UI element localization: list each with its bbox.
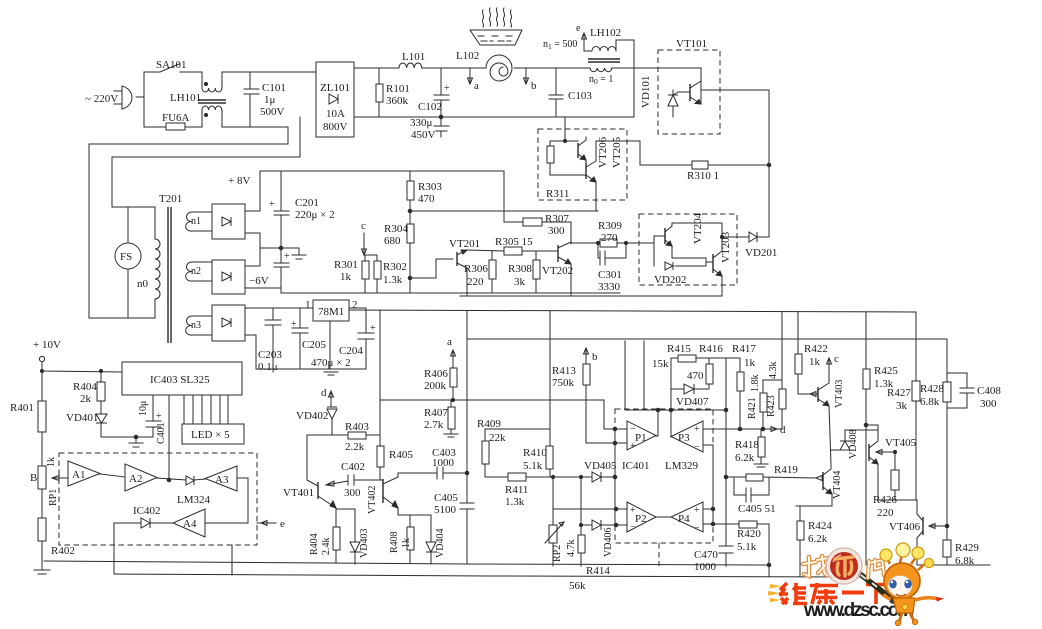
svg-text:d: d	[780, 424, 786, 436]
svg-text:VT406: VT406	[889, 521, 921, 533]
svg-text:R406: R406	[424, 368, 448, 380]
svg-text:VD403: VD403	[359, 529, 370, 558]
svg-text:SA101: SA101	[156, 59, 187, 71]
svg-text:n0: n0	[137, 278, 149, 290]
svg-text:4.7k: 4.7k	[566, 540, 577, 558]
svg-text:VD404: VD404	[435, 529, 446, 558]
svg-text:1k: 1k	[401, 538, 412, 548]
svg-text:220: 220	[467, 276, 484, 288]
svg-text:6.2k: 6.2k	[735, 452, 755, 464]
svg-text:R429: R429	[955, 542, 979, 554]
svg-text:a: a	[474, 80, 479, 92]
svg-text:6.8k: 6.8k	[920, 396, 940, 408]
svg-text:470μ × 2: 470μ × 2	[311, 357, 351, 369]
svg-text:R306: R306	[464, 263, 488, 275]
svg-text:C201: C201	[295, 197, 319, 209]
svg-text:LM324: LM324	[177, 494, 211, 506]
svg-text:VD405: VD405	[584, 460, 617, 472]
svg-text:1μ: 1μ	[264, 94, 276, 106]
svg-text:ZL101: ZL101	[320, 82, 350, 94]
svg-text:R423: R423	[766, 395, 777, 417]
svg-text:+: +	[291, 319, 297, 330]
svg-text:VD402: VD402	[296, 410, 328, 422]
svg-text:10μ: 10μ	[138, 401, 149, 416]
svg-text:P1: P1	[635, 432, 647, 444]
svg-text:~ 220V: ~ 220V	[85, 93, 118, 105]
svg-text:300: 300	[344, 487, 361, 499]
svg-text:C470: C470	[694, 549, 718, 561]
svg-text:C205: C205	[302, 339, 326, 351]
svg-text:R415: R415	[667, 343, 691, 355]
svg-text:R303: R303	[418, 181, 442, 193]
svg-text:R417: R417	[732, 343, 756, 355]
svg-text:VT204: VT204	[692, 212, 704, 244]
svg-text:+: +	[694, 505, 700, 516]
svg-text:LH102: LH102	[590, 27, 621, 39]
svg-text:R301: R301	[334, 259, 358, 271]
svg-text:R411: R411	[505, 484, 528, 496]
svg-text:1: 1	[305, 299, 311, 311]
svg-text:LM329: LM329	[665, 460, 699, 472]
svg-text:VT202: VT202	[542, 265, 573, 277]
svg-text:R427: R427	[887, 387, 911, 399]
svg-text:5100: 5100	[434, 504, 457, 516]
svg-text:800V: 800V	[323, 121, 348, 133]
svg-text:0.1μ: 0.1μ	[258, 361, 278, 373]
svg-text:IC401: IC401	[622, 460, 650, 472]
svg-text:R421: R421	[747, 397, 758, 419]
svg-text:R304: R304	[384, 223, 408, 235]
svg-text:e: e	[576, 23, 581, 34]
svg-text:R409: R409	[477, 418, 501, 430]
svg-text:+: +	[370, 323, 376, 334]
svg-text:360k: 360k	[386, 95, 409, 107]
svg-text:R305 15: R305 15	[495, 236, 533, 248]
svg-text:300: 300	[980, 398, 997, 410]
svg-text:LH101: LH101	[170, 92, 201, 104]
svg-text:−6V: −6V	[249, 275, 269, 287]
svg-text:750k: 750k	[552, 377, 575, 389]
svg-text:VD407: VD407	[676, 396, 709, 408]
svg-text:78M1: 78M1	[318, 306, 344, 318]
svg-text:n0 = 1: n0 = 1	[589, 74, 613, 86]
svg-text:R416: R416	[699, 343, 723, 355]
svg-text:R424: R424	[808, 520, 832, 532]
svg-text:L102: L102	[456, 50, 479, 62]
svg-text:1k: 1k	[744, 357, 756, 369]
svg-text:L101: L101	[402, 51, 425, 63]
svg-text:C103: C103	[568, 90, 592, 102]
svg-text:220: 220	[877, 507, 894, 519]
svg-text:R405: R405	[389, 449, 413, 461]
svg-text:R309: R309	[598, 220, 622, 232]
svg-text:3330: 3330	[598, 281, 621, 293]
svg-text:VT205: VT205	[611, 136, 623, 168]
svg-text:VD202: VD202	[654, 274, 686, 286]
svg-text:C204: C204	[339, 345, 363, 357]
svg-text:b: b	[592, 351, 598, 363]
svg-text:5.1k: 5.1k	[523, 460, 543, 472]
svg-text:VT404: VT404	[832, 471, 843, 499]
svg-text:10A: 10A	[326, 108, 345, 120]
svg-text:VT403: VT403	[834, 380, 845, 408]
svg-text:A1: A1	[72, 469, 85, 481]
svg-text:R101: R101	[386, 83, 410, 95]
svg-text:R410: R410	[523, 447, 547, 459]
svg-text:C401: C401	[156, 422, 167, 444]
svg-text:d: d	[321, 387, 327, 399]
svg-text:+: +	[444, 83, 450, 94]
svg-text:330μ: 330μ	[410, 117, 433, 129]
svg-text:R419: R419	[774, 464, 798, 476]
svg-text:RP1: RP1	[48, 489, 59, 506]
svg-text:R425: R425	[874, 365, 898, 377]
svg-text:LED × 5: LED × 5	[191, 429, 230, 441]
svg-text:R414: R414	[586, 565, 610, 577]
svg-text:e: e	[280, 518, 285, 530]
svg-text:n2: n2	[191, 266, 201, 277]
svg-text:1000: 1000	[694, 561, 717, 573]
svg-text:300: 300	[548, 225, 565, 237]
svg-text:C408: C408	[977, 385, 1001, 397]
svg-text:c: c	[361, 220, 366, 232]
svg-text:−: −	[694, 523, 700, 534]
svg-text:1k: 1k	[809, 356, 821, 368]
svg-text:VD408: VD408	[848, 430, 859, 459]
svg-text:R413: R413	[552, 365, 576, 377]
svg-text:C101: C101	[262, 82, 286, 94]
svg-text:1k: 1k	[340, 271, 352, 283]
svg-text:A3: A3	[215, 474, 229, 486]
svg-text:4.3k: 4.3k	[768, 362, 779, 380]
svg-text:450V: 450V	[411, 129, 436, 141]
svg-text:VT402: VT402	[367, 486, 378, 514]
svg-text:n3: n3	[191, 320, 201, 331]
svg-text:R310 1: R310 1	[687, 170, 719, 182]
svg-text:IC402: IC402	[133, 505, 161, 517]
svg-text:2.2k: 2.2k	[345, 441, 365, 453]
svg-text:1.3k: 1.3k	[383, 274, 403, 286]
svg-text:+: +	[694, 424, 700, 435]
svg-text:R408: R408	[389, 531, 400, 553]
svg-text:VT201: VT201	[449, 238, 480, 250]
svg-text:VD401: VD401	[66, 412, 98, 424]
svg-text:R420: R420	[737, 528, 761, 540]
svg-text:R407: R407	[424, 407, 448, 419]
svg-text:56k: 56k	[569, 580, 586, 592]
svg-text:R311: R311	[546, 188, 569, 200]
svg-text:R307: R307	[545, 213, 569, 225]
svg-text:a: a	[447, 336, 452, 348]
svg-text:n1: n1	[191, 216, 201, 227]
svg-text:470: 470	[418, 193, 435, 205]
svg-text:P3: P3	[678, 432, 690, 444]
svg-text:FU6A: FU6A	[162, 112, 190, 124]
svg-text:+: +	[284, 251, 290, 262]
svg-text:1.8k: 1.8k	[750, 375, 761, 393]
svg-text:2k: 2k	[80, 393, 92, 405]
svg-text:1k: 1k	[46, 457, 57, 467]
svg-text:R404: R404	[73, 381, 97, 393]
svg-text:VD101: VD101	[640, 76, 652, 108]
svg-text:2: 2	[352, 299, 358, 311]
svg-text:−: −	[694, 442, 700, 453]
svg-text:680: 680	[384, 235, 401, 247]
svg-text:C405 51: C405 51	[738, 503, 776, 515]
svg-text:IC403 SL325: IC403 SL325	[150, 374, 210, 386]
svg-text:R404: R404	[309, 533, 320, 555]
svg-text:VD406: VD406	[603, 528, 614, 557]
svg-text:+ 8V: + 8V	[228, 175, 250, 187]
svg-text:c: c	[834, 353, 839, 365]
svg-text:500V: 500V	[260, 106, 285, 118]
svg-text:22k: 22k	[489, 432, 506, 444]
svg-text:R302: R302	[383, 261, 407, 273]
svg-text:B: B	[30, 472, 37, 484]
svg-text:3k: 3k	[514, 276, 526, 288]
svg-text:470: 470	[687, 370, 704, 382]
svg-text:270: 270	[601, 232, 618, 244]
svg-text:220μ × 2: 220μ × 2	[295, 209, 335, 221]
svg-text:b: b	[531, 80, 537, 92]
svg-text:+: +	[269, 199, 275, 210]
svg-text:200k: 200k	[424, 380, 447, 392]
svg-text:RP2: RP2	[552, 545, 563, 562]
svg-text:R402: R402	[51, 545, 75, 557]
svg-text:+ 10V: + 10V	[33, 339, 61, 351]
svg-text:R428: R428	[920, 383, 944, 395]
svg-text:T201: T201	[159, 193, 182, 205]
svg-text:2.7k: 2.7k	[424, 419, 444, 431]
svg-text:R401: R401	[10, 402, 34, 414]
svg-text:FS: FS	[120, 251, 132, 263]
svg-text:6.2k: 6.2k	[808, 533, 828, 545]
svg-text:VT401: VT401	[283, 487, 314, 499]
svg-text:1000: 1000	[432, 457, 455, 469]
svg-text:R422: R422	[804, 343, 828, 355]
svg-text:5.1k: 5.1k	[737, 541, 757, 553]
svg-text:A4: A4	[183, 518, 197, 530]
svg-text:R418: R418	[735, 439, 759, 451]
svg-text:R308: R308	[508, 263, 532, 275]
svg-text:C102: C102	[418, 101, 442, 113]
svg-text:P2: P2	[635, 513, 647, 525]
svg-text:C405: C405	[434, 492, 458, 504]
svg-text:+: +	[156, 411, 162, 422]
svg-text:15k: 15k	[652, 358, 669, 370]
svg-text:C402: C402	[341, 461, 365, 473]
svg-text:R403: R403	[345, 421, 369, 433]
svg-text:P4: P4	[678, 513, 690, 525]
svg-text:VD201: VD201	[745, 247, 777, 259]
svg-text:3k: 3k	[896, 400, 908, 412]
svg-text:2.4k: 2.4k	[321, 538, 332, 556]
svg-text:VT405: VT405	[885, 437, 917, 449]
svg-text:C301: C301	[598, 269, 622, 281]
svg-text:1.3k: 1.3k	[505, 496, 525, 508]
svg-text:C203: C203	[258, 349, 282, 361]
svg-text:VT206: VT206	[597, 136, 609, 168]
svg-text:A2: A2	[129, 473, 142, 485]
svg-text:VT101: VT101	[676, 38, 707, 50]
